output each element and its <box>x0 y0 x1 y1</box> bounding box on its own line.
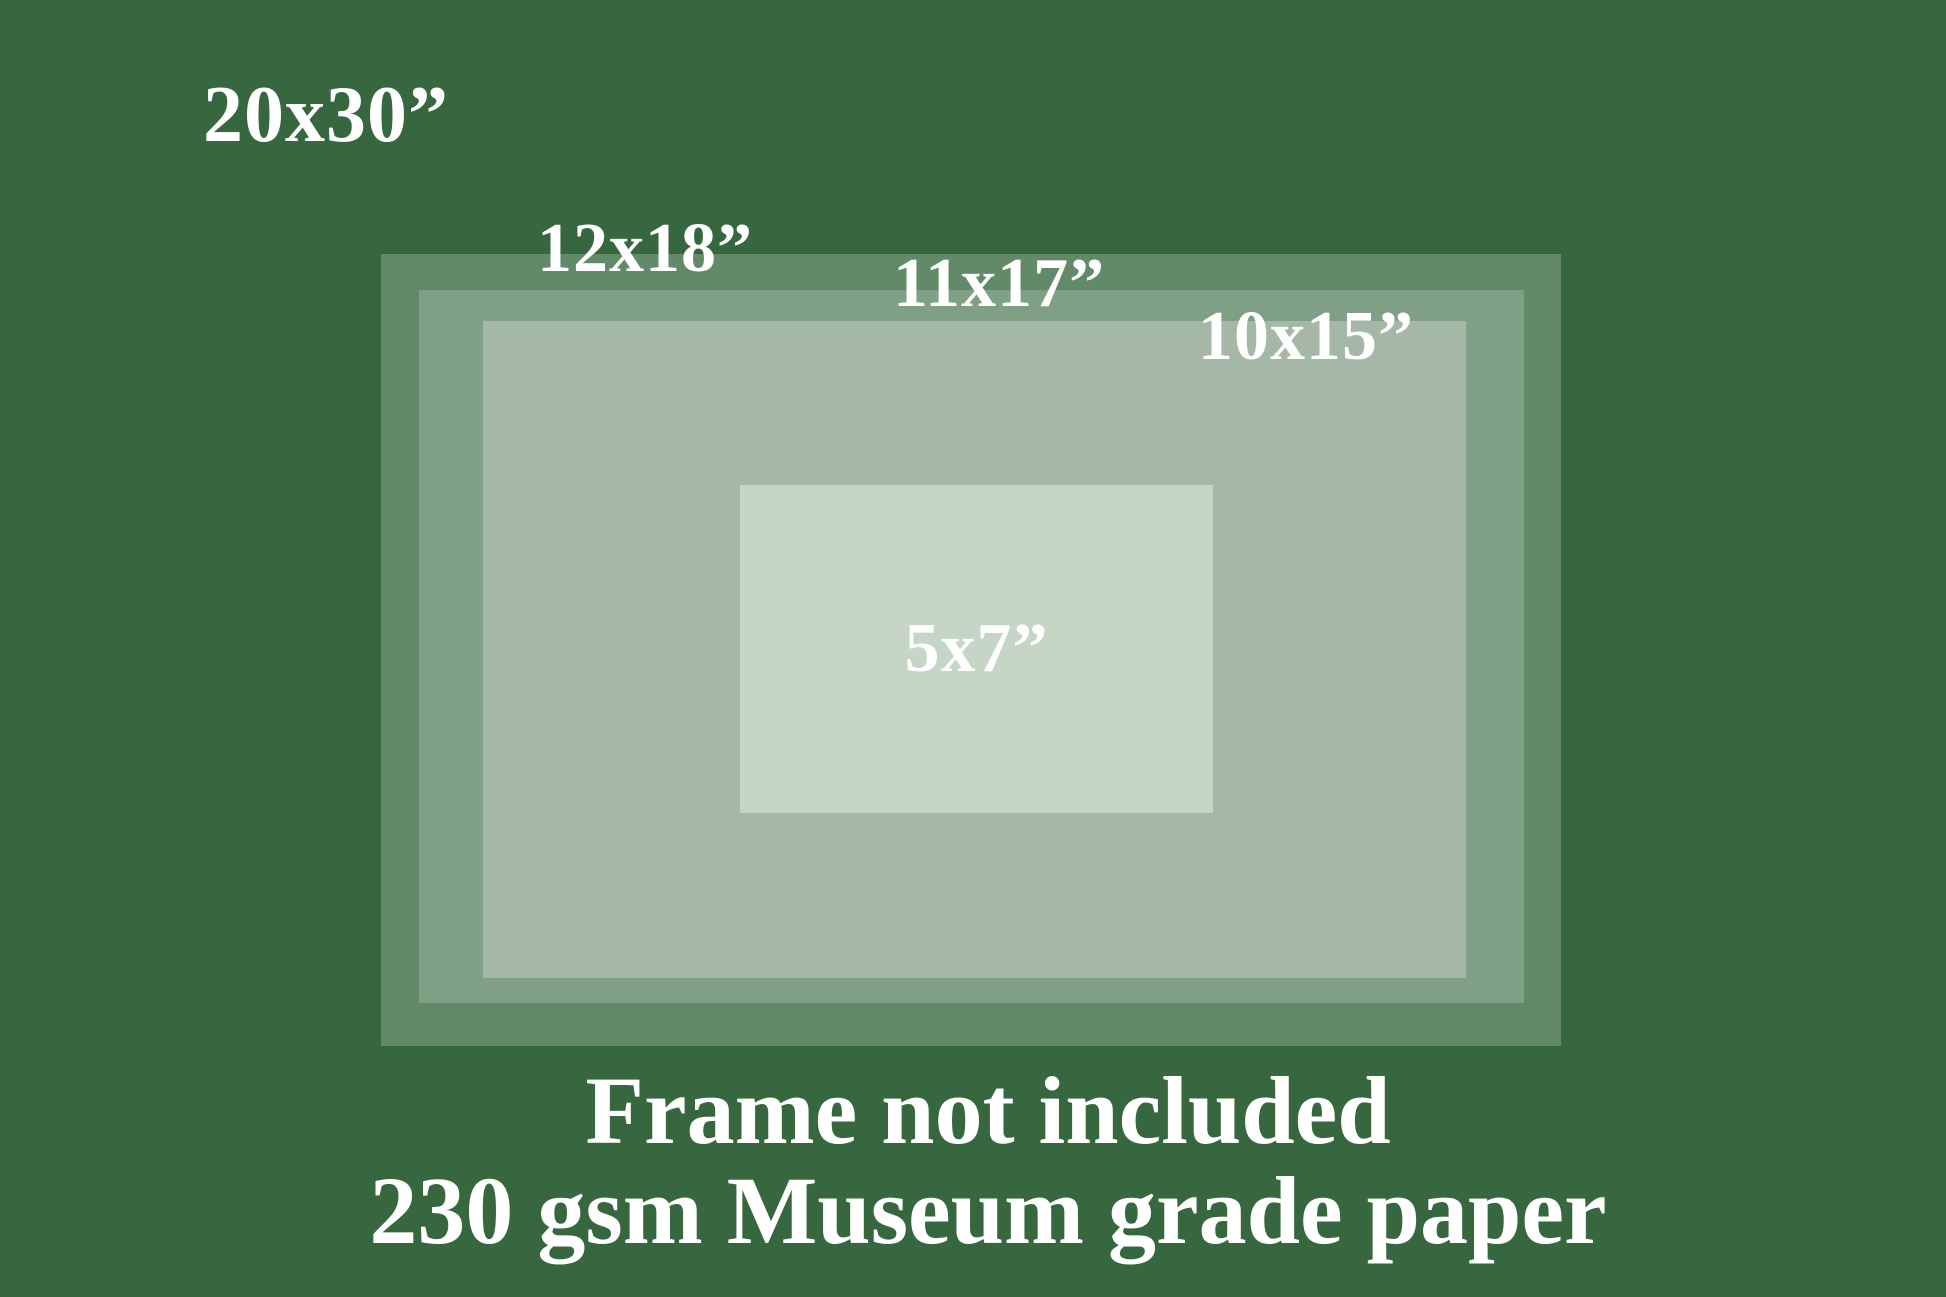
size-label-11x17: 11x17” <box>893 249 1105 319</box>
size-rect-5x7: 5x7” <box>740 485 1213 813</box>
footer-caption: Frame not included 230 gsm Museum grade … <box>15 1063 1946 1259</box>
size-label-12x18: 12x18” <box>537 214 753 284</box>
size-label-20x30: 20x30” <box>203 75 449 155</box>
size-label-5x7: 5x7” <box>905 614 1049 684</box>
footer-line-paper-spec: 230 gsm Museum grade paper <box>15 1163 1946 1259</box>
footer-line-frame-not-included: Frame not included <box>15 1063 1946 1159</box>
size-label-10x15: 10x15” <box>1198 302 1414 372</box>
print-size-comparison-canvas: 5x7” 20x30” 12x18” 11x17” 10x15” Frame n… <box>0 0 1946 1297</box>
